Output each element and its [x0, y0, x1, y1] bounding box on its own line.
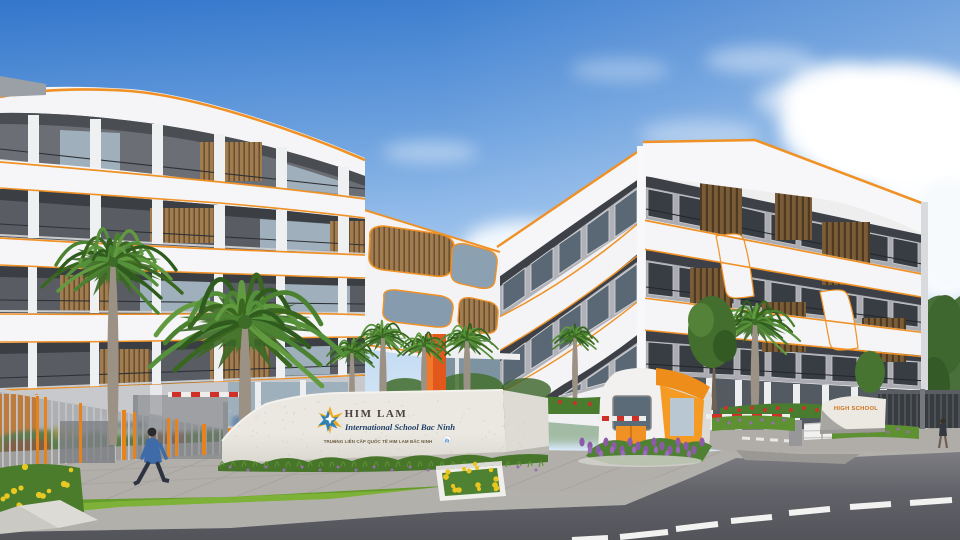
svg-text:TRUƟNG LIÊN CẤP QUỐC TẾ HIM LA: TRUƟNG LIÊN CẤP QUỐC TẾ HIM LAM BẮC NINH [324, 439, 433, 444]
svg-text:HIM LAM: HIM LAM [345, 408, 408, 420]
svg-text:HIGH SCHOOL: HIGH SCHOOL [834, 406, 878, 412]
svg-text:ib: ib [445, 439, 451, 445]
svg-text:International School Bac Ninh: International School Bac Ninh [344, 422, 455, 432]
